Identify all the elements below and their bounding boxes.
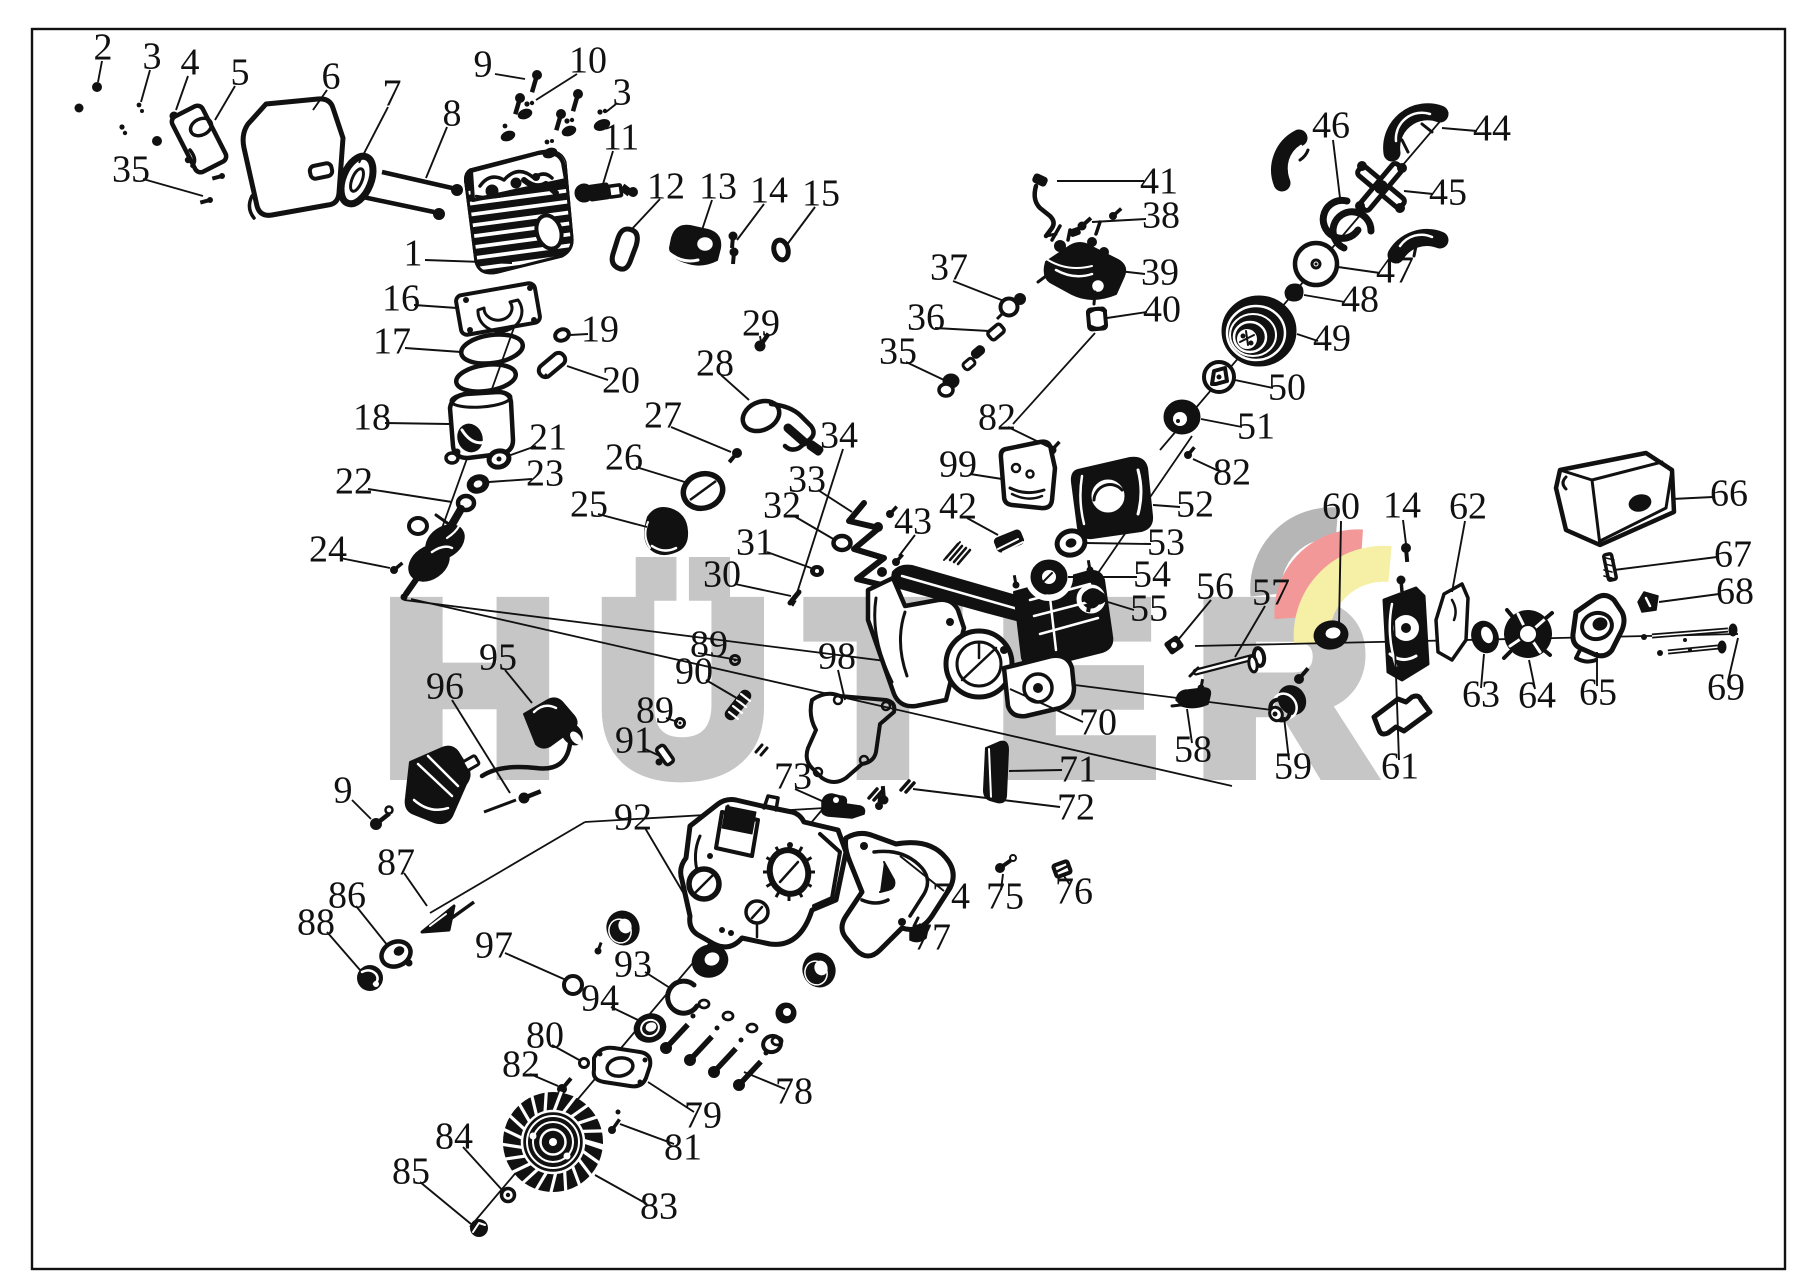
svg-text:3: 3 — [143, 36, 162, 78]
svg-text:74: 74 — [932, 876, 970, 918]
svg-text:62: 62 — [1449, 486, 1487, 528]
svg-text:85: 85 — [392, 1151, 430, 1193]
svg-text:40: 40 — [1143, 289, 1181, 331]
svg-text:64: 64 — [1518, 675, 1556, 717]
svg-text:17: 17 — [373, 321, 411, 363]
svg-text:18: 18 — [353, 397, 391, 439]
svg-text:91: 91 — [615, 720, 653, 762]
svg-text:23: 23 — [526, 453, 564, 495]
svg-text:15: 15 — [802, 173, 840, 215]
svg-text:16: 16 — [382, 278, 420, 320]
svg-text:13: 13 — [699, 166, 737, 208]
svg-text:68: 68 — [1716, 571, 1754, 613]
svg-text:72: 72 — [1057, 787, 1095, 829]
svg-text:56: 56 — [1196, 566, 1234, 608]
svg-text:38: 38 — [1142, 195, 1180, 237]
svg-text:90: 90 — [675, 651, 713, 693]
svg-text:59: 59 — [1274, 746, 1312, 788]
svg-text:76: 76 — [1055, 871, 1093, 913]
svg-text:94: 94 — [581, 978, 619, 1020]
svg-text:14: 14 — [750, 170, 788, 212]
svg-text:46: 46 — [1312, 105, 1350, 147]
svg-text:43: 43 — [894, 501, 932, 543]
svg-text:28: 28 — [696, 343, 734, 385]
svg-text:93: 93 — [614, 944, 652, 986]
svg-text:39: 39 — [1141, 252, 1179, 294]
svg-text:52: 52 — [1176, 484, 1214, 526]
svg-text:75: 75 — [986, 876, 1024, 918]
svg-text:65: 65 — [1579, 672, 1617, 714]
svg-text:14: 14 — [1383, 485, 1421, 527]
svg-text:92: 92 — [614, 797, 652, 839]
svg-text:84: 84 — [435, 1116, 473, 1158]
svg-text:88: 88 — [297, 902, 335, 944]
svg-text:35: 35 — [112, 149, 150, 191]
svg-text:48: 48 — [1341, 279, 1379, 321]
svg-text:37: 37 — [930, 247, 968, 289]
svg-text:78: 78 — [775, 1071, 813, 1113]
svg-text:20: 20 — [602, 360, 640, 402]
svg-text:24: 24 — [309, 529, 347, 571]
svg-text:1: 1 — [404, 233, 423, 275]
svg-text:60: 60 — [1322, 486, 1360, 528]
svg-text:34: 34 — [820, 415, 858, 457]
svg-text:99: 99 — [939, 444, 977, 486]
svg-text:96: 96 — [426, 666, 464, 708]
svg-text:4: 4 — [181, 42, 200, 84]
svg-text:58: 58 — [1174, 729, 1212, 771]
svg-text:98: 98 — [818, 636, 856, 678]
svg-text:44: 44 — [1473, 108, 1511, 150]
svg-text:97: 97 — [475, 925, 513, 967]
svg-text:67: 67 — [1714, 534, 1752, 576]
svg-text:6: 6 — [322, 56, 341, 98]
svg-text:57: 57 — [1252, 572, 1290, 614]
svg-text:51: 51 — [1237, 406, 1275, 448]
svg-text:35: 35 — [879, 331, 917, 373]
svg-text:9: 9 — [334, 770, 353, 812]
svg-text:26: 26 — [605, 437, 643, 479]
svg-text:45: 45 — [1429, 172, 1467, 214]
svg-text:49: 49 — [1313, 318, 1351, 360]
svg-text:25: 25 — [570, 484, 608, 526]
svg-text:82: 82 — [502, 1044, 540, 1086]
svg-text:61: 61 — [1381, 746, 1419, 788]
svg-text:77: 77 — [913, 917, 951, 959]
svg-text:10: 10 — [569, 40, 607, 82]
svg-text:33: 33 — [788, 459, 826, 501]
svg-text:50: 50 — [1268, 367, 1306, 409]
svg-text:55: 55 — [1130, 588, 1168, 630]
svg-text:82: 82 — [978, 397, 1016, 439]
svg-text:82: 82 — [1213, 452, 1251, 494]
svg-text:95: 95 — [479, 637, 517, 679]
svg-text:73: 73 — [774, 756, 812, 798]
svg-text:27: 27 — [644, 395, 682, 437]
svg-text:5: 5 — [231, 52, 250, 94]
svg-text:71: 71 — [1059, 749, 1097, 791]
svg-text:63: 63 — [1462, 674, 1500, 716]
svg-text:9: 9 — [474, 44, 493, 86]
svg-text:2: 2 — [94, 27, 113, 69]
svg-text:69: 69 — [1707, 667, 1745, 709]
svg-text:7: 7 — [383, 73, 402, 115]
svg-text:70: 70 — [1079, 702, 1117, 744]
svg-text:81: 81 — [664, 1127, 702, 1169]
svg-text:19: 19 — [581, 309, 619, 351]
svg-text:3: 3 — [613, 72, 632, 114]
svg-text:31: 31 — [736, 522, 774, 564]
svg-text:83: 83 — [640, 1186, 678, 1228]
svg-text:42: 42 — [939, 486, 977, 528]
svg-text:29: 29 — [742, 303, 780, 345]
svg-text:11: 11 — [603, 117, 640, 159]
svg-text:47: 47 — [1376, 250, 1414, 292]
svg-text:8: 8 — [443, 93, 462, 135]
svg-text:87: 87 — [377, 842, 415, 884]
svg-text:22: 22 — [335, 461, 373, 503]
svg-text:12: 12 — [647, 166, 685, 208]
svg-text:66: 66 — [1710, 473, 1748, 515]
